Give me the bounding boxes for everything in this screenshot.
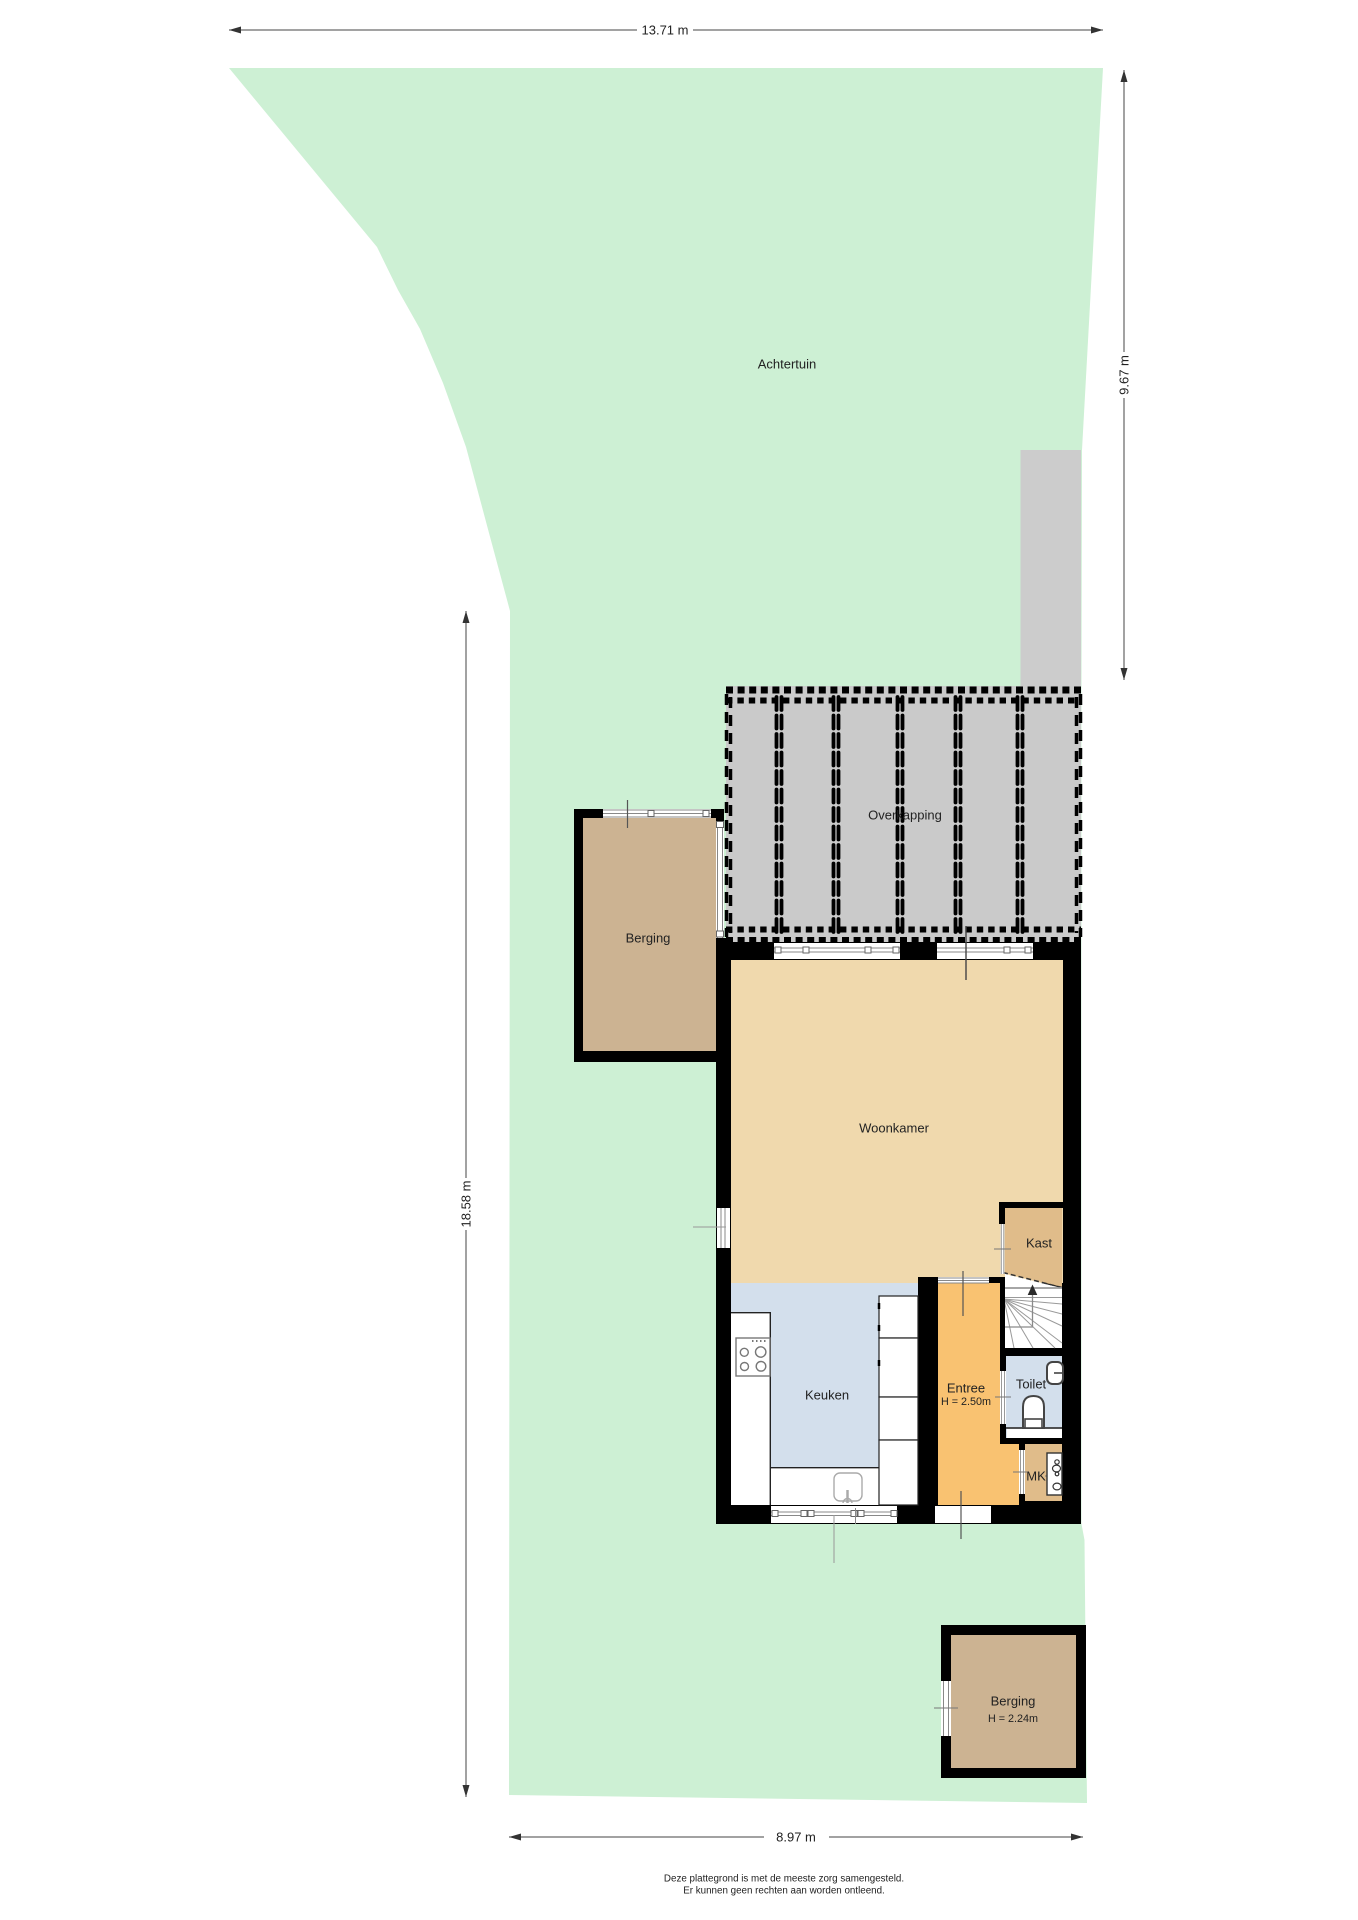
svg-text:Toilet: Toilet (1016, 1377, 1047, 1392)
svg-text:Berging: Berging (991, 1694, 1036, 1709)
svg-text:Overkapping: Overkapping (868, 808, 942, 823)
svg-text:Berging: Berging (626, 931, 671, 946)
svg-text:H = 2.24m: H = 2.24m (988, 1713, 1038, 1725)
svg-text:18.58 m: 18.58 m (459, 1181, 474, 1228)
svg-text:Er kunnen geen rechten aan wor: Er kunnen geen rechten aan worden ontlee… (683, 1886, 885, 1897)
svg-text:MK: MK (1026, 1469, 1046, 1484)
svg-text:Entree: Entree (947, 1381, 985, 1396)
svg-text:8.97 m: 8.97 m (776, 1830, 816, 1845)
svg-text:H = 2.50m: H = 2.50m (941, 1396, 991, 1408)
svg-text:Keuken: Keuken (805, 1388, 849, 1403)
svg-text:Achtertuin: Achtertuin (758, 357, 817, 372)
svg-text:Kast: Kast (1026, 1236, 1052, 1251)
svg-text:9.67 m: 9.67 m (1117, 355, 1132, 395)
svg-text:Woonkamer: Woonkamer (859, 1121, 930, 1136)
svg-text:13.71 m: 13.71 m (642, 23, 689, 38)
svg-text:Deze plattegrond is met de mee: Deze plattegrond is met de meeste zorg s… (664, 1874, 904, 1885)
